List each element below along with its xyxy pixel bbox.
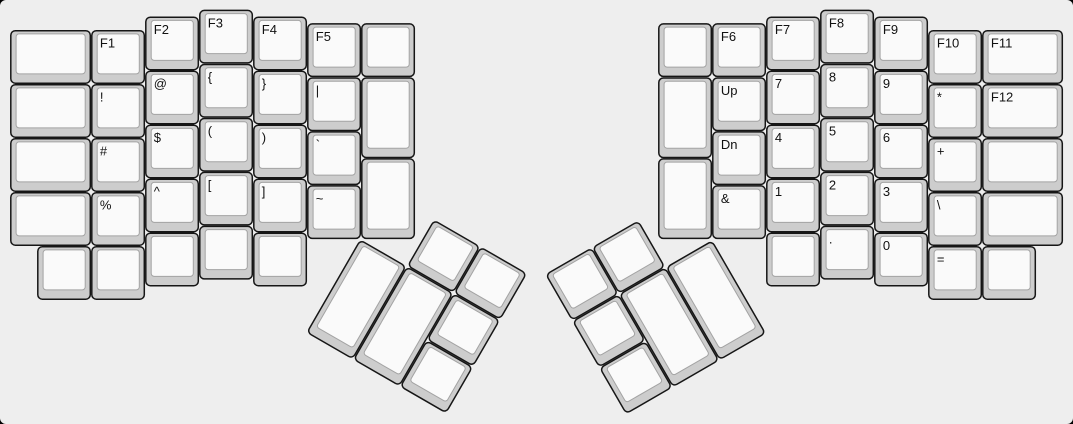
svg-text:*: * bbox=[937, 90, 942, 105]
svg-text:[: [ bbox=[208, 177, 212, 192]
svg-text:F4: F4 bbox=[262, 22, 277, 37]
svg-text:F3: F3 bbox=[208, 15, 223, 30]
svg-text:0: 0 bbox=[883, 238, 890, 253]
svg-text:\: \ bbox=[937, 198, 941, 213]
svg-text:2: 2 bbox=[829, 177, 836, 192]
svg-text:.: . bbox=[829, 231, 833, 246]
svg-text:^: ^ bbox=[154, 184, 161, 199]
svg-text:#: # bbox=[100, 144, 108, 159]
svg-text:F9: F9 bbox=[883, 22, 898, 37]
svg-text:{: { bbox=[208, 69, 213, 84]
svg-text:F6: F6 bbox=[721, 29, 736, 44]
svg-text:F2: F2 bbox=[154, 22, 169, 37]
svg-text:6: 6 bbox=[883, 130, 890, 145]
svg-text:F8: F8 bbox=[829, 15, 844, 30]
svg-text:4: 4 bbox=[775, 130, 782, 145]
svg-text:$: $ bbox=[154, 130, 162, 145]
svg-text:F5: F5 bbox=[316, 29, 331, 44]
svg-text:`: ` bbox=[316, 137, 320, 152]
svg-text:3: 3 bbox=[883, 184, 890, 199]
svg-text:]: ] bbox=[262, 184, 266, 199]
svg-text:F11: F11 bbox=[991, 36, 1012, 51]
svg-text:F12: F12 bbox=[991, 90, 1013, 105]
svg-text:}: } bbox=[262, 76, 267, 91]
svg-text:(: ( bbox=[208, 123, 213, 138]
svg-text:Dn: Dn bbox=[721, 137, 738, 152]
svg-text:F10: F10 bbox=[937, 36, 959, 51]
svg-text:F1: F1 bbox=[100, 36, 115, 51]
svg-text:|: | bbox=[316, 83, 319, 98]
svg-text:1: 1 bbox=[775, 184, 782, 199]
svg-text:+: + bbox=[937, 144, 945, 159]
svg-text:F7: F7 bbox=[775, 22, 790, 37]
svg-text:9: 9 bbox=[883, 76, 890, 91]
svg-text:7: 7 bbox=[775, 76, 782, 91]
svg-text:&: & bbox=[721, 191, 730, 206]
svg-text:%: % bbox=[100, 198, 112, 213]
svg-text:5: 5 bbox=[829, 123, 836, 138]
svg-text:8: 8 bbox=[829, 69, 836, 84]
svg-text:): ) bbox=[262, 130, 266, 145]
svg-text:@: @ bbox=[154, 76, 167, 91]
svg-text:=: = bbox=[937, 252, 945, 267]
svg-text:~: ~ bbox=[316, 191, 324, 206]
svg-text:Up: Up bbox=[721, 83, 738, 98]
svg-text:!: ! bbox=[100, 90, 104, 105]
